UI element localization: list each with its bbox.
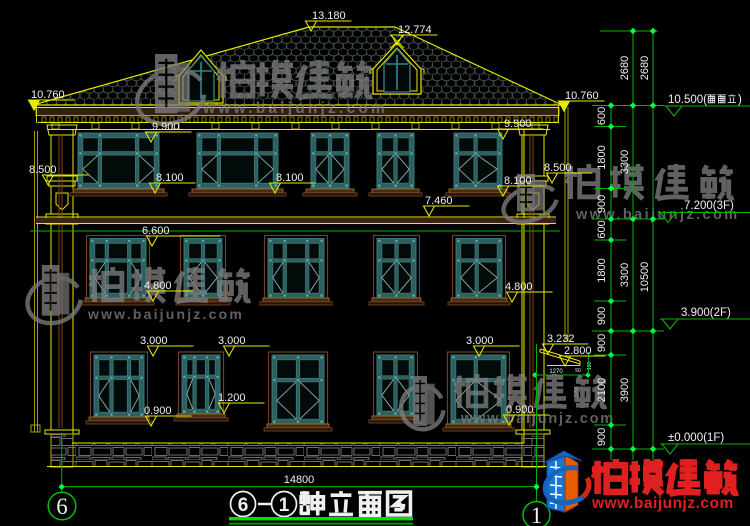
svg-text:900: 900 (596, 334, 608, 352)
svg-text:±0.000(1F): ±0.000(1F) (668, 432, 724, 444)
svg-text:10.760: 10.760 (31, 89, 65, 101)
svg-text:10500: 10500 (639, 262, 651, 293)
svg-text:3.232: 3.232 (547, 333, 575, 345)
svg-text:9.900: 9.900 (152, 121, 180, 133)
svg-text:www.baijunjz.com: www.baijunjz.com (87, 306, 244, 322)
svg-text:12.774: 12.774 (398, 24, 432, 36)
svg-text:4.800: 4.800 (505, 281, 533, 293)
svg-text:3.000: 3.000 (140, 335, 168, 347)
svg-text:8.100: 8.100 (504, 175, 532, 187)
svg-text:900: 900 (596, 195, 608, 213)
svg-text:6: 6 (238, 495, 249, 516)
svg-text:3.000: 3.000 (218, 335, 246, 347)
svg-text:2680: 2680 (619, 56, 631, 80)
svg-text:10.500(: 10.500( (668, 94, 707, 106)
svg-text:9.900: 9.900 (504, 118, 532, 130)
svg-text:1.200: 1.200 (218, 392, 246, 404)
svg-text:50: 50 (575, 368, 581, 374)
svg-text:2680: 2680 (639, 56, 651, 80)
svg-text:www.baijunjz.com: www.baijunjz.com (202, 100, 388, 117)
svg-text:8.500: 8.500 (544, 162, 572, 174)
svg-text:0.900: 0.900 (144, 405, 172, 417)
svg-text:10.760: 10.760 (565, 90, 599, 102)
svg-text:8.500: 8.500 (29, 164, 57, 176)
svg-text:0.900: 0.900 (506, 404, 534, 416)
svg-text:www.baijunjz.com: www.baijunjz.com (460, 411, 615, 427)
svg-text:900: 900 (596, 428, 608, 446)
svg-text:2100: 2100 (596, 378, 608, 402)
svg-text:3300: 3300 (619, 150, 631, 174)
svg-text:7.200(3F): 7.200(3F) (684, 200, 734, 212)
svg-text:600: 600 (596, 220, 608, 238)
svg-text:900: 900 (596, 307, 608, 325)
svg-text:13.180: 13.180 (312, 10, 346, 22)
svg-text:2.800: 2.800 (564, 345, 592, 357)
svg-text:3300: 3300 (619, 263, 631, 287)
svg-text:6.600: 6.600 (142, 225, 170, 237)
svg-text:6: 6 (56, 494, 68, 519)
svg-text:8.100: 8.100 (276, 172, 304, 184)
svg-text:3900: 3900 (619, 378, 631, 402)
svg-text:7.460: 7.460 (425, 195, 453, 207)
svg-text:100: 100 (587, 362, 593, 371)
svg-text:1800: 1800 (596, 145, 608, 169)
svg-text:4.800: 4.800 (144, 280, 172, 292)
svg-text:8.100: 8.100 (156, 172, 184, 184)
svg-text:1: 1 (531, 503, 543, 526)
svg-text:): ) (738, 94, 742, 106)
svg-text:1800: 1800 (596, 258, 608, 282)
svg-text:3.000: 3.000 (466, 335, 494, 347)
svg-text:14800: 14800 (284, 474, 315, 486)
svg-text:3.900(2F): 3.900(2F) (681, 307, 731, 319)
svg-text:600: 600 (596, 107, 608, 125)
svg-text:www.baijunjz.com: www.baijunjz.com (591, 495, 734, 512)
svg-text:1: 1 (279, 495, 290, 516)
